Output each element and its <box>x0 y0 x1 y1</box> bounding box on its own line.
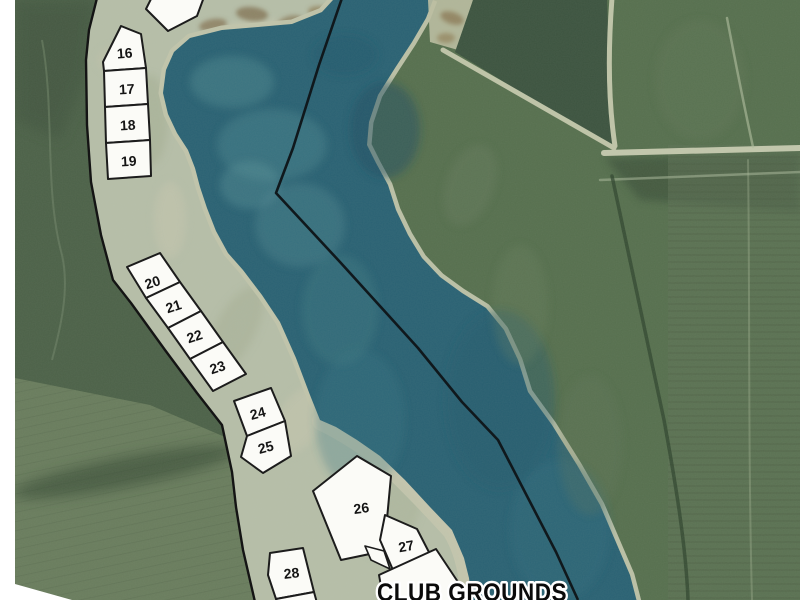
club-grounds-label: CLUB GROUNDS <box>377 579 567 600</box>
lot-28-label: 28 <box>283 564 300 582</box>
aerial-plat-map: 16 17 18 19 20 21 22 23 24 25 26 27 28 C… <box>0 0 800 600</box>
lot-19-label: 19 <box>121 153 138 170</box>
lot-17-label: 17 <box>119 81 136 98</box>
lot-26-label: 26 <box>352 499 370 517</box>
map-canvas: 16 17 18 19 20 21 22 23 24 25 26 27 28 C… <box>0 0 800 600</box>
white-margin-left <box>0 0 15 600</box>
lot-16-label: 16 <box>116 44 133 61</box>
lot-27-label: 27 <box>397 537 415 555</box>
lot-18-label: 18 <box>120 117 137 134</box>
